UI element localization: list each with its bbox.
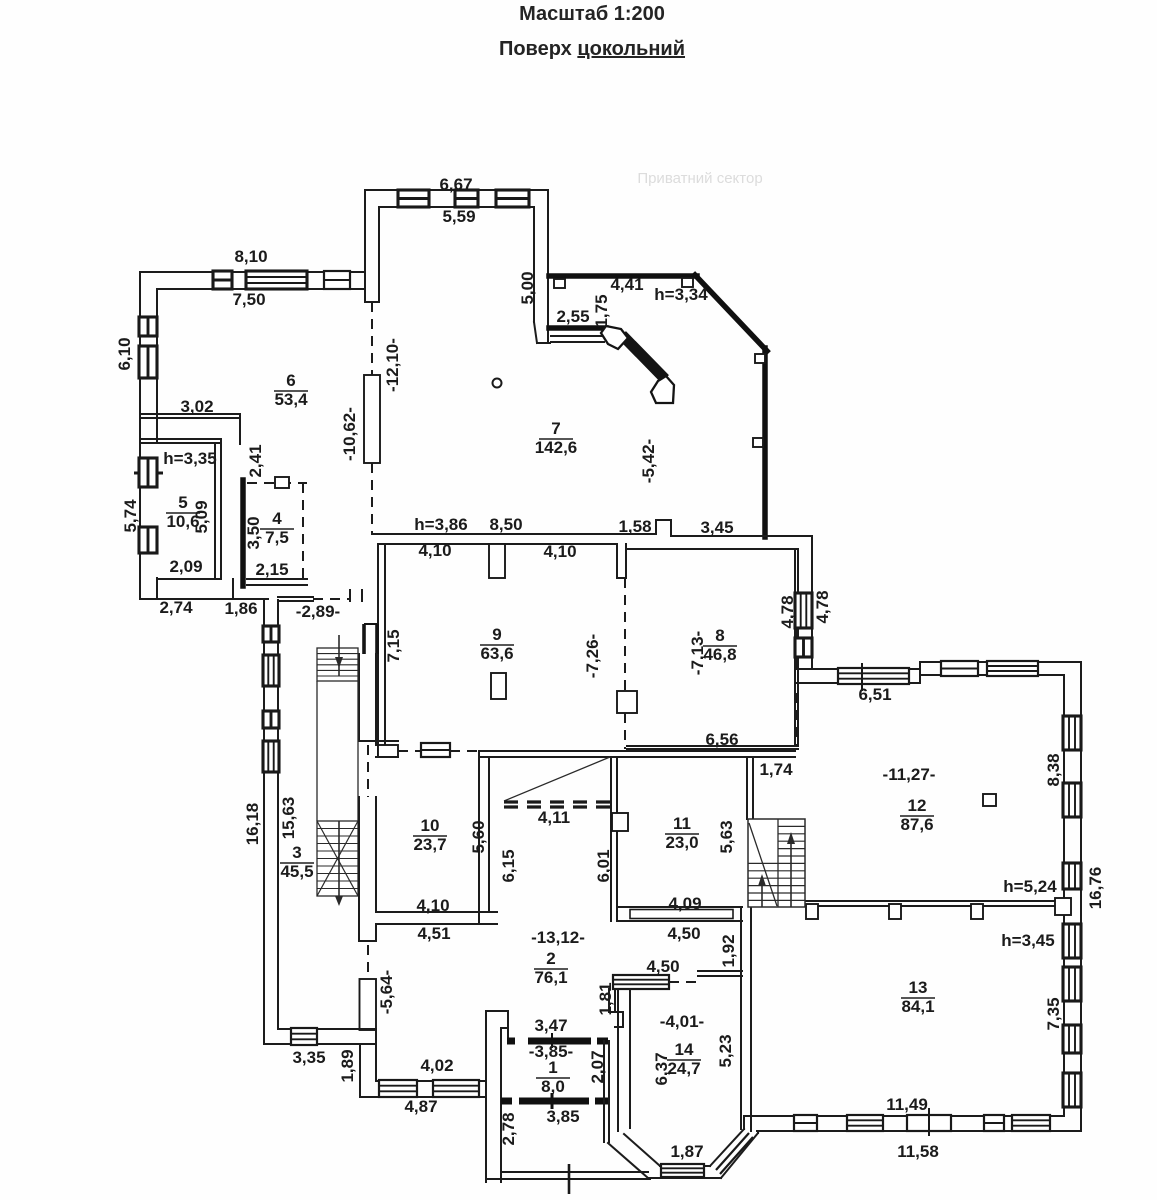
svg-text:h=3,45: h=3,45	[1001, 931, 1054, 950]
svg-text:4,41: 4,41	[610, 275, 643, 294]
svg-text:3,02: 3,02	[180, 397, 213, 416]
svg-text:87,6: 87,6	[900, 815, 933, 834]
svg-text:5,00: 5,00	[518, 271, 537, 304]
svg-text:5,23: 5,23	[716, 1034, 735, 1067]
svg-text:1,86: 1,86	[224, 599, 257, 618]
svg-text:-5,64-: -5,64-	[377, 970, 396, 1014]
svg-text:7,5: 7,5	[265, 528, 289, 547]
svg-text:6,56: 6,56	[705, 730, 738, 749]
svg-text:4,02: 4,02	[420, 1056, 453, 1075]
svg-text:11,49: 11,49	[886, 1095, 928, 1114]
svg-text:6: 6	[286, 371, 295, 390]
svg-text:23,7: 23,7	[413, 835, 446, 854]
svg-text:13: 13	[909, 978, 928, 997]
svg-text:-3,85-: -3,85-	[529, 1042, 573, 1061]
svg-text:6,37: 6,37	[652, 1052, 671, 1085]
svg-text:1,75: 1,75	[592, 294, 611, 327]
svg-text:63,6: 63,6	[480, 644, 513, 663]
svg-text:12: 12	[908, 796, 927, 815]
svg-text:45,5: 45,5	[280, 862, 313, 881]
svg-text:2,07: 2,07	[588, 1050, 607, 1083]
svg-text:4,10: 4,10	[543, 542, 576, 561]
svg-text:3,47: 3,47	[534, 1016, 567, 1035]
svg-text:9: 9	[492, 625, 501, 644]
svg-text:8,38: 8,38	[1044, 753, 1063, 786]
svg-text:3,35: 3,35	[292, 1048, 325, 1067]
svg-text:6,01: 6,01	[594, 849, 613, 882]
svg-text:2,74: 2,74	[159, 598, 193, 617]
svg-text:6,51: 6,51	[858, 685, 891, 704]
svg-text:2,55: 2,55	[556, 307, 589, 326]
svg-text:6,10: 6,10	[115, 337, 134, 370]
svg-text:4,50: 4,50	[646, 957, 679, 976]
svg-text:24,7: 24,7	[667, 1059, 700, 1078]
svg-text:6,15: 6,15	[499, 849, 518, 882]
svg-text:1,74: 1,74	[759, 760, 793, 779]
svg-text:2,09: 2,09	[169, 557, 202, 576]
svg-text:-7,13-: -7,13-	[688, 631, 707, 675]
svg-text:-10,62-: -10,62-	[340, 407, 359, 461]
svg-text:23,0: 23,0	[665, 833, 698, 852]
svg-text:1,58: 1,58	[618, 517, 651, 536]
svg-text:5,74: 5,74	[121, 499, 140, 533]
svg-text:10: 10	[421, 816, 440, 835]
svg-text:-13,12-: -13,12-	[531, 928, 585, 947]
svg-text:76,1: 76,1	[534, 968, 567, 987]
svg-text:142,6: 142,6	[535, 438, 578, 457]
svg-text:1,92: 1,92	[719, 934, 738, 967]
svg-text:53,4: 53,4	[274, 390, 308, 409]
svg-text:-2,89-: -2,89-	[296, 602, 340, 621]
svg-text:1,81: 1,81	[596, 982, 615, 1015]
svg-text:7,50: 7,50	[232, 290, 265, 309]
svg-text:-5,42-: -5,42-	[639, 439, 658, 483]
svg-text:-7,26-: -7,26-	[583, 634, 602, 678]
svg-text:2,78: 2,78	[499, 1112, 518, 1145]
svg-text:5,63: 5,63	[717, 820, 736, 853]
svg-text:5,59: 5,59	[442, 207, 475, 226]
svg-text:Приватний сектор: Приватний сектор	[637, 170, 762, 187]
svg-text:4,78: 4,78	[778, 595, 797, 628]
svg-text:4,09: 4,09	[668, 894, 701, 913]
svg-text:-11,27-: -11,27-	[883, 765, 936, 784]
svg-text:4,10: 4,10	[418, 541, 451, 560]
svg-text:46,8: 46,8	[703, 645, 736, 664]
svg-text:8,50: 8,50	[489, 515, 522, 534]
svg-text:h=3,34: h=3,34	[654, 285, 708, 304]
svg-text:2,15: 2,15	[255, 560, 288, 579]
svg-text:7: 7	[551, 419, 560, 438]
svg-text:11: 11	[673, 814, 691, 833]
svg-text:4,10: 4,10	[416, 896, 449, 915]
svg-text:7,35: 7,35	[1044, 997, 1063, 1030]
svg-text:4,50: 4,50	[667, 924, 700, 943]
svg-text:-12,10-: -12,10-	[383, 338, 402, 392]
svg-text:3,50: 3,50	[244, 516, 263, 549]
svg-text:Масштаб 1:200: Масштаб 1:200	[519, 3, 665, 25]
svg-text:16,76: 16,76	[1086, 867, 1105, 910]
svg-text:8,0: 8,0	[541, 1077, 565, 1096]
svg-text:h=5,24: h=5,24	[1003, 877, 1057, 896]
svg-text:16,18: 16,18	[243, 803, 262, 846]
svg-text:3,45: 3,45	[700, 518, 733, 537]
svg-text:15,63: 15,63	[279, 797, 298, 840]
svg-text:4,51: 4,51	[417, 924, 450, 943]
svg-text:2: 2	[546, 949, 555, 968]
svg-text:84,1: 84,1	[901, 997, 934, 1016]
svg-text:Поверх цокольний: Поверх цокольний	[499, 38, 685, 60]
svg-text:3,85: 3,85	[546, 1107, 579, 1126]
svg-text:4,78: 4,78	[813, 590, 832, 623]
svg-text:4: 4	[272, 509, 282, 528]
svg-text:h=3,86: h=3,86	[414, 515, 467, 534]
svg-text:8,10: 8,10	[234, 247, 267, 266]
svg-text:h=3,35: h=3,35	[163, 449, 216, 468]
svg-text:-4,01-: -4,01-	[660, 1012, 704, 1031]
svg-text:3: 3	[292, 843, 301, 862]
svg-text:5: 5	[178, 493, 187, 512]
svg-text:5,09: 5,09	[192, 500, 211, 533]
svg-text:8: 8	[715, 626, 724, 645]
svg-text:2,41: 2,41	[246, 444, 265, 477]
svg-text:1,89: 1,89	[338, 1049, 357, 1082]
svg-text:5,60: 5,60	[469, 820, 488, 853]
svg-text:11,58: 11,58	[897, 1142, 939, 1161]
svg-text:14: 14	[675, 1040, 694, 1059]
svg-text:6,67: 6,67	[439, 175, 472, 194]
svg-text:4,11: 4,11	[538, 808, 570, 827]
svg-text:4,87: 4,87	[404, 1097, 437, 1116]
svg-text:1,87: 1,87	[670, 1142, 703, 1161]
svg-text:7,15: 7,15	[384, 629, 403, 662]
